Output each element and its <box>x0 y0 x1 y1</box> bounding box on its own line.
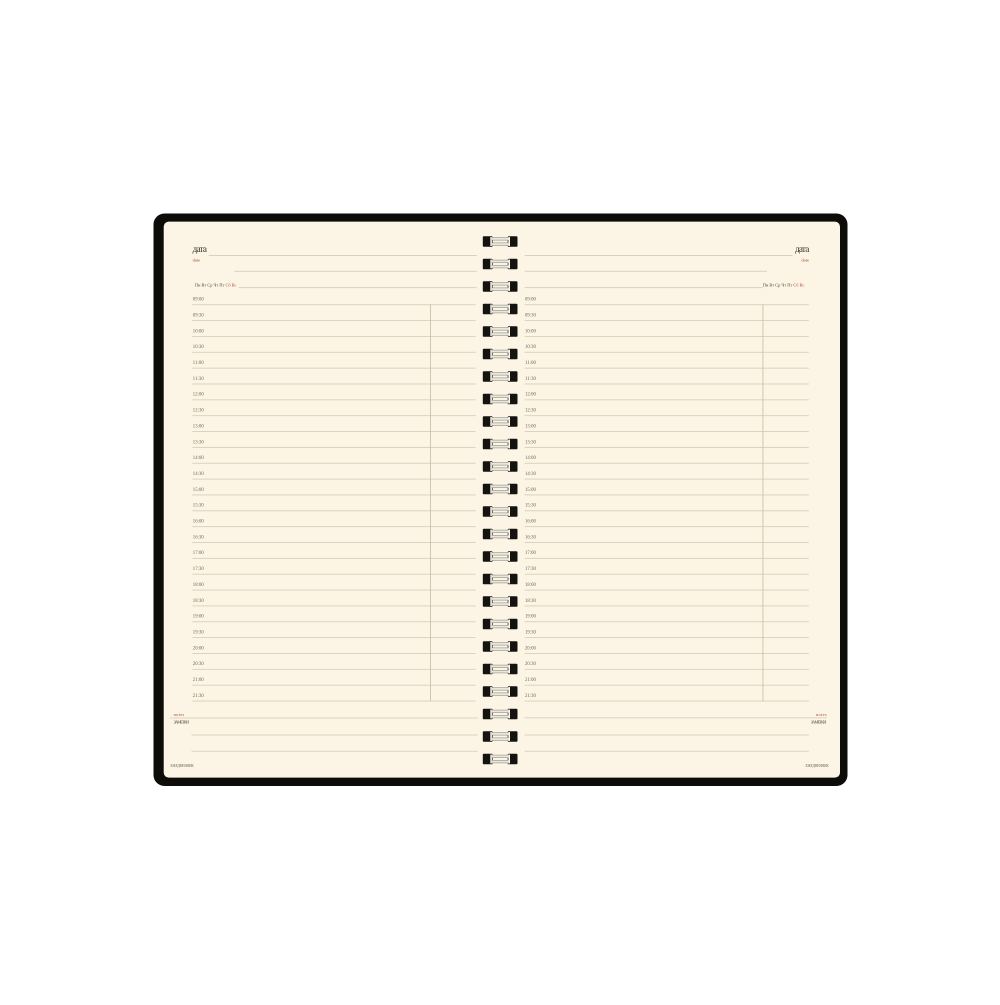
svg-text:ЗАМЕТКИ: ЗАМЕТКИ <box>811 719 827 724</box>
svg-text:дата: дата <box>795 244 809 254</box>
svg-text:19:30: 19:30 <box>193 630 205 635</box>
svg-text:20:30: 20:30 <box>525 662 537 667</box>
svg-text:15:30: 15:30 <box>525 504 537 509</box>
svg-text:дата: дата <box>193 244 207 254</box>
svg-text:18:00: 18:00 <box>525 583 537 588</box>
svg-text:10:00: 10:00 <box>525 329 537 334</box>
svg-text:21:30: 21:30 <box>193 694 205 699</box>
svg-text:16:00: 16:00 <box>525 520 537 525</box>
svg-text:21:00: 21:00 <box>193 678 205 683</box>
svg-text:10:30: 10:30 <box>525 345 537 350</box>
svg-text:15:30: 15:30 <box>193 504 205 509</box>
svg-text:13:00: 13:00 <box>193 424 205 429</box>
svg-text:14:00: 14:00 <box>193 456 205 461</box>
svg-text:13:30: 13:30 <box>193 440 205 445</box>
svg-text:15:00: 15:00 <box>193 488 205 493</box>
svg-text:16:30: 16:30 <box>525 535 537 540</box>
svg-text:16:00: 16:00 <box>193 520 205 525</box>
svg-text:18:30: 18:30 <box>193 599 205 604</box>
svg-text:19:00: 19:00 <box>525 615 537 620</box>
svg-text:21:30: 21:30 <box>525 694 537 699</box>
svg-text:date: date <box>801 257 809 262</box>
svg-text:notes: notes <box>174 712 185 717</box>
svg-text:date: date <box>193 257 201 262</box>
svg-text:11:30: 11:30 <box>193 377 205 382</box>
svg-text:Пн Вт Ср Чт Пт Сб Вс: Пн Вт Ср Чт Пт Сб Вс <box>195 282 237 287</box>
svg-text:12:00: 12:00 <box>525 393 537 398</box>
svg-text:19:00: 19:00 <box>193 615 205 620</box>
svg-text:20:00: 20:00 <box>193 646 205 651</box>
svg-text:18:00: 18:00 <box>193 583 205 588</box>
svg-text:13:00: 13:00 <box>525 424 537 429</box>
svg-text:09:30: 09:30 <box>193 313 205 318</box>
svg-text:10:00: 10:00 <box>193 329 205 334</box>
svg-text:11:30: 11:30 <box>525 377 537 382</box>
svg-text:20:30: 20:30 <box>193 662 205 667</box>
svg-text:ЕЖЕДНЕВНИК: ЕЖЕДНЕВНИК <box>806 764 830 768</box>
svg-text:18:30: 18:30 <box>525 599 537 604</box>
svg-text:10:30: 10:30 <box>193 345 205 350</box>
svg-text:17:00: 17:00 <box>193 551 205 556</box>
svg-text:notes: notes <box>816 712 827 717</box>
svg-text:12:30: 12:30 <box>193 409 205 414</box>
svg-text:19:30: 19:30 <box>525 630 537 635</box>
svg-text:Пн Вт Ср Чт Пт Сб Вс: Пн Вт Ср Чт Пт Сб Вс <box>763 282 805 287</box>
svg-text:09:00: 09:00 <box>525 298 537 303</box>
svg-text:21:00: 21:00 <box>525 678 537 683</box>
svg-text:11:00: 11:00 <box>193 361 205 366</box>
svg-text:14:30: 14:30 <box>193 472 205 477</box>
svg-text:20:00: 20:00 <box>525 646 537 651</box>
svg-text:16:30: 16:30 <box>193 535 205 540</box>
svg-text:17:30: 17:30 <box>193 567 205 572</box>
svg-text:15:00: 15:00 <box>525 488 537 493</box>
svg-text:14:30: 14:30 <box>525 472 537 477</box>
svg-text:09:30: 09:30 <box>525 313 537 318</box>
svg-text:09:00: 09:00 <box>193 298 205 303</box>
svg-text:12:30: 12:30 <box>525 409 537 414</box>
svg-text:13:30: 13:30 <box>525 440 537 445</box>
svg-text:14:00: 14:00 <box>525 456 537 461</box>
svg-text:11:00: 11:00 <box>525 361 537 366</box>
svg-text:ЗАМЕТКИ: ЗАМЕТКИ <box>174 719 190 724</box>
svg-text:17:30: 17:30 <box>525 567 537 572</box>
svg-text:17:00: 17:00 <box>525 551 537 556</box>
svg-text:12:00: 12:00 <box>193 393 205 398</box>
svg-text:ЕЖЕДНЕВНИК: ЕЖЕДНЕВНИК <box>171 764 195 768</box>
